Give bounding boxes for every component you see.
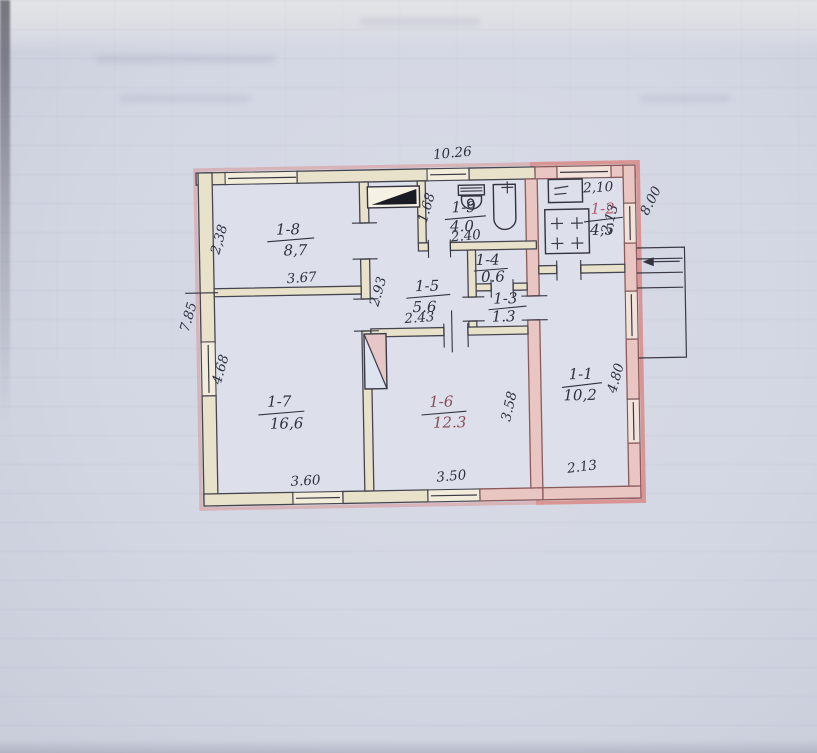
wall-segment [469, 321, 477, 327]
room-1-4-id: 1-4 [475, 251, 499, 269]
room-1-5-id: 1-5 [415, 277, 439, 295]
floor-plan-svg: 10.26 7.85 8.00 1-8 8,7 2,38 3.67 1-7 16… [0, 0, 817, 753]
dim-1-9-bottom: 2.40 [449, 227, 482, 246]
room-1-8-area: 8,7 [283, 241, 308, 259]
wall-segment [480, 488, 543, 501]
room-1-1-id: 1-1 [569, 365, 593, 383]
porch-outline [636, 247, 686, 358]
room-1-6-id: 1-6 [429, 392, 454, 410]
wall-segment [468, 326, 528, 335]
wall-segment [469, 167, 535, 180]
window [427, 168, 469, 181]
room-1-9-id: 1-9 [451, 198, 476, 216]
wall-segment [543, 486, 641, 500]
wall-segment [623, 165, 636, 203]
dim-1-6-bottom: 3.50 [436, 467, 468, 486]
window [225, 171, 299, 184]
wall-segment [535, 166, 557, 178]
window [624, 203, 637, 243]
room-1-6-area: 12.3 [433, 413, 467, 432]
wall-segment [343, 490, 428, 504]
wall-segment [528, 320, 543, 488]
entrance-door-opening [625, 291, 638, 339]
wall-segment [525, 179, 539, 296]
window [428, 489, 480, 502]
window-pane-line [431, 495, 477, 496]
floor-plan: 10.26 7.85 8.00 1-8 8,7 2,38 3.67 1-7 16… [174, 140, 689, 510]
room-1-7-id: 1-7 [267, 392, 292, 410]
wall-segment [626, 339, 639, 399]
window-pane-line [430, 174, 466, 175]
wall-segment [418, 243, 428, 251]
wall-segment [198, 173, 215, 343]
window-pane-line [633, 402, 634, 440]
window [557, 165, 611, 178]
room-1-7-area: 16,6 [270, 414, 304, 433]
corner-heater-icon [364, 334, 387, 389]
arrow-shaft [650, 261, 680, 262]
step-line [637, 272, 683, 273]
room-1-3-id: 1-3 [493, 289, 517, 307]
dim-overall-right: 8.00 [637, 183, 665, 217]
wall-segment [204, 492, 293, 506]
dim-1-5-bottom: 2.43 [403, 309, 435, 327]
room-1-3-area: 1.3 [492, 307, 516, 325]
wall-segment [539, 265, 557, 273]
wall-segment [202, 396, 218, 506]
window-pane-line [630, 206, 631, 240]
dim-overall-top: 10.26 [432, 144, 472, 163]
wall-segment [297, 169, 428, 183]
door-line [631, 294, 632, 336]
wall-segment [581, 264, 625, 273]
window-pane-line [296, 497, 340, 498]
furnace-icon [367, 186, 419, 208]
room-1-4-area: 0.6 [481, 267, 506, 285]
room-1-1-area: 10,2 [563, 386, 597, 405]
dimension-tick [452, 310, 453, 352]
scanned-floor-plan-photo: 10.26 7.85 8.00 1-8 8,7 2,38 3.67 1-7 16… [0, 0, 817, 753]
wall-segment [624, 243, 637, 291]
step-line [637, 258, 683, 259]
window [627, 399, 640, 443]
step-line [637, 287, 683, 288]
dimension-tick [185, 293, 218, 294]
room-1-8-id: 1-8 [276, 220, 300, 238]
porch-steps-icon [636, 247, 686, 358]
dim-1-2-top: 2,10 [582, 179, 614, 197]
dim-1-7-bottom: 3.60 [290, 472, 321, 490]
dim-1-8-bottom: 3.67 [286, 269, 318, 287]
window [293, 491, 343, 504]
